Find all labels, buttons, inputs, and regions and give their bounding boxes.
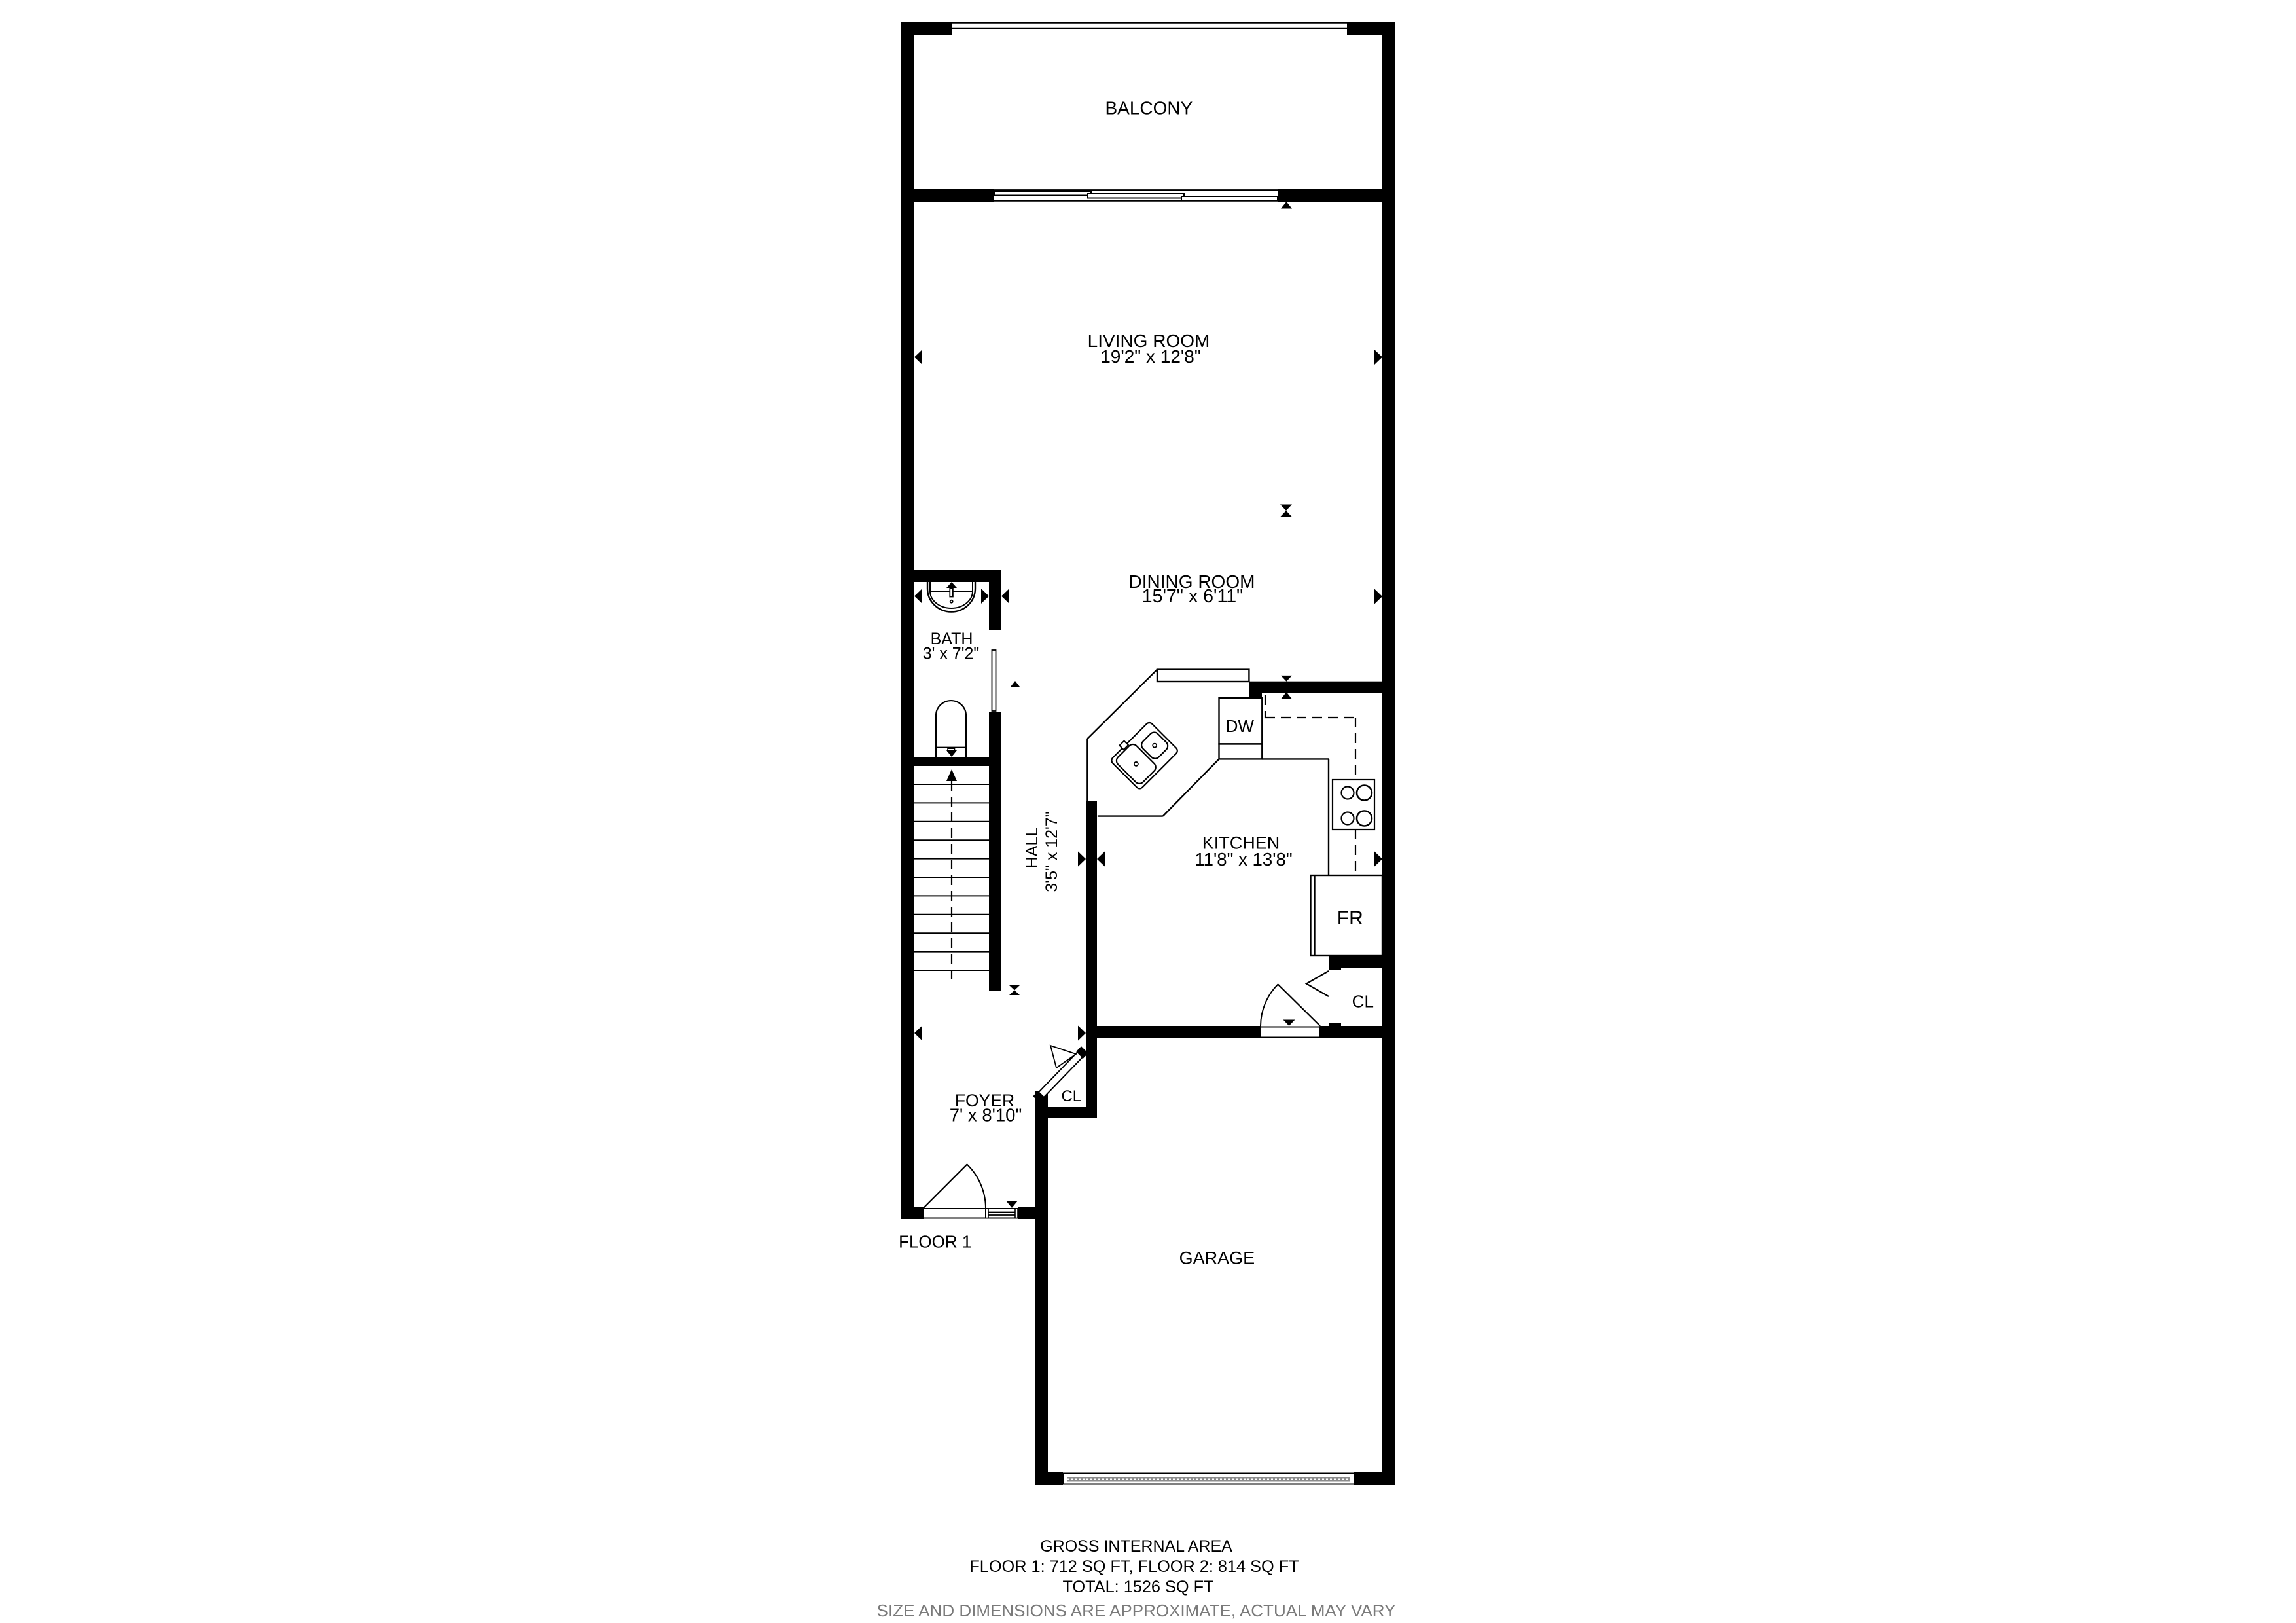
svg-text:11'8" x 13'8": 11'8" x 13'8": [1194, 849, 1292, 869]
svg-text:GARAGE: GARAGE: [1179, 1248, 1255, 1267]
svg-text:BALCONY: BALCONY: [1105, 98, 1193, 119]
svg-text:FLOOR 1: FLOOR 1: [899, 1231, 971, 1251]
svg-text:15'7" x 6'11": 15'7" x 6'11": [1142, 586, 1244, 607]
svg-text:SIZE AND DIMENSIONS ARE APPROX: SIZE AND DIMENSIONS ARE APPROXIMATE, ACT…: [877, 1601, 1396, 1620]
svg-text:CL: CL: [1352, 991, 1374, 1011]
svg-text:CL: CL: [1061, 1087, 1081, 1105]
svg-text:TOTAL: 1526 SQ FT: TOTAL: 1526 SQ FT: [1062, 1578, 1213, 1596]
svg-text:3' x 7'2": 3' x 7'2": [923, 645, 980, 663]
svg-text:HALL: HALL: [1023, 828, 1041, 869]
svg-text:FR: FR: [1337, 907, 1363, 929]
svg-text:FLOOR 1: 712 SQ FT, FLOOR 2: 8: FLOOR 1: 712 SQ FT, FLOOR 2: 814 SQ FT: [969, 1558, 1299, 1576]
svg-text:7' x 8'10": 7' x 8'10": [950, 1105, 1022, 1125]
svg-text:DW: DW: [1226, 716, 1255, 736]
svg-text:GROSS INTERNAL AREA: GROSS INTERNAL AREA: [1040, 1537, 1232, 1556]
svg-text:19'2" x 12'8": 19'2" x 12'8": [1100, 346, 1201, 367]
svg-text:3'5" x 12'7": 3'5" x 12'7": [1043, 811, 1061, 892]
